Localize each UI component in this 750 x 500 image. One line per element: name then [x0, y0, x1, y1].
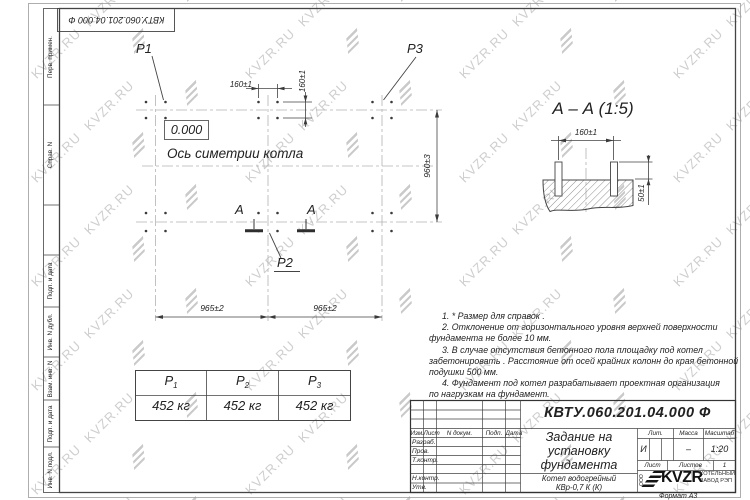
mass-value: –	[674, 444, 704, 454]
load-table-value-2: 452 кг	[207, 399, 279, 414]
p1-label: P1	[136, 42, 152, 57]
top-stamp-doc-number: КВТУ.060.201.04.000 Ф	[58, 9, 175, 31]
rev-header-data: Дата	[506, 430, 521, 437]
load-table-value-1: 452 кг	[136, 399, 207, 414]
note-line-6: подушки 500 мм.	[429, 367, 498, 377]
row-label-prov: Пров.	[412, 448, 429, 455]
note-line-5: забетонировать . Расстояние от осей край…	[429, 356, 738, 366]
dim-label-section-160: 160±1	[566, 128, 606, 137]
titleblock-title-line-2: установку	[521, 444, 638, 458]
sheets-total-value: 1	[714, 462, 736, 469]
format-label: Формат А3	[659, 493, 697, 500]
section-letter-left: А	[235, 203, 244, 218]
strip-label-perv-primen: Перв. примен.	[47, 17, 57, 97]
p3-label: P3	[407, 42, 423, 57]
section-letter-right: А	[307, 203, 316, 218]
titleblock-title-line-3: фундамента	[521, 458, 638, 472]
scale-value: 1:20	[704, 444, 736, 454]
company-line-1: КОТЕЛЬНЫЙ	[700, 471, 735, 477]
note-line-3: фундамента не более 10 мм.	[429, 333, 551, 343]
note-line-7: 4. Фундамент под котел разрабатывает про…	[429, 378, 720, 388]
rev-header-izm: Изм.	[411, 430, 424, 437]
drawing-sheet: KVZR.RUKVZR.RUKVZR.RUKVZR.RUKVZR.RUKVZR.…	[0, 0, 750, 500]
dim-label-965-left: 965±2	[190, 304, 234, 314]
load-table-value-3: 452 кг	[279, 399, 351, 414]
load-table-header-3: P3	[279, 374, 351, 390]
p2-label: P2	[277, 256, 293, 271]
company-line-2: ЗАВОД РЭП	[700, 478, 732, 484]
dim-label-160-horizontal: 160±1	[212, 80, 252, 89]
titleblock-title-line-1: Задание на	[521, 430, 638, 444]
elevation-mark: 0.000	[165, 121, 209, 140]
row-label-nkontr: Н.контр.	[412, 475, 440, 482]
rev-header-podp: Подп.	[483, 430, 506, 437]
dim-label-160-vertical: 160±1	[298, 60, 308, 102]
row-label-utv: Утв.	[412, 484, 427, 491]
lit-value: И	[638, 444, 650, 454]
titleblock-doc-number: КВТУ.060.201.04.000 Ф	[520, 405, 735, 422]
mass-label: Масса	[674, 430, 704, 437]
company-name: KVZR	[661, 469, 703, 487]
note-line-8: по нагрузкам на фундамент.	[429, 389, 550, 399]
strip-label-inv-podl: Инв. N подл.	[47, 430, 57, 500]
row-label-tkontr: Т.контр.	[412, 457, 438, 464]
strip-label-sprav-n: Справ. N	[47, 115, 57, 195]
row-label-razrab: Разраб.	[412, 439, 436, 446]
symmetry-axis-label: Ось симетрии котла	[167, 146, 303, 162]
rev-header-ndokum: N докум.	[437, 430, 483, 437]
load-table-header-1: P1	[136, 374, 207, 390]
dim-label-960: 960±3	[423, 141, 433, 191]
rev-header-list: Лист	[424, 430, 437, 437]
note-line-1: 1. * Размер для справок .	[429, 311, 545, 321]
section-title: А – А (1:5)	[538, 99, 648, 119]
scale-label: Масштаб	[704, 430, 736, 437]
load-table-header-2: P2	[207, 374, 279, 390]
dim-label-965-right: 965±2	[303, 304, 347, 314]
text-layer: КВТУ.060.201.04.000 Ф Перв. примен. Спра…	[0, 0, 750, 500]
titleblock-product-line-2: КВр-0,7 К (К)	[521, 484, 638, 493]
note-line-4: 3. В случае отсутствия бетонного пола пл…	[429, 345, 703, 355]
note-line-2: 2. Отклонение от горизонтального уровня …	[429, 322, 717, 332]
lit-label: Лит.	[638, 430, 674, 437]
dim-label-section-50: 50±1	[637, 173, 647, 213]
